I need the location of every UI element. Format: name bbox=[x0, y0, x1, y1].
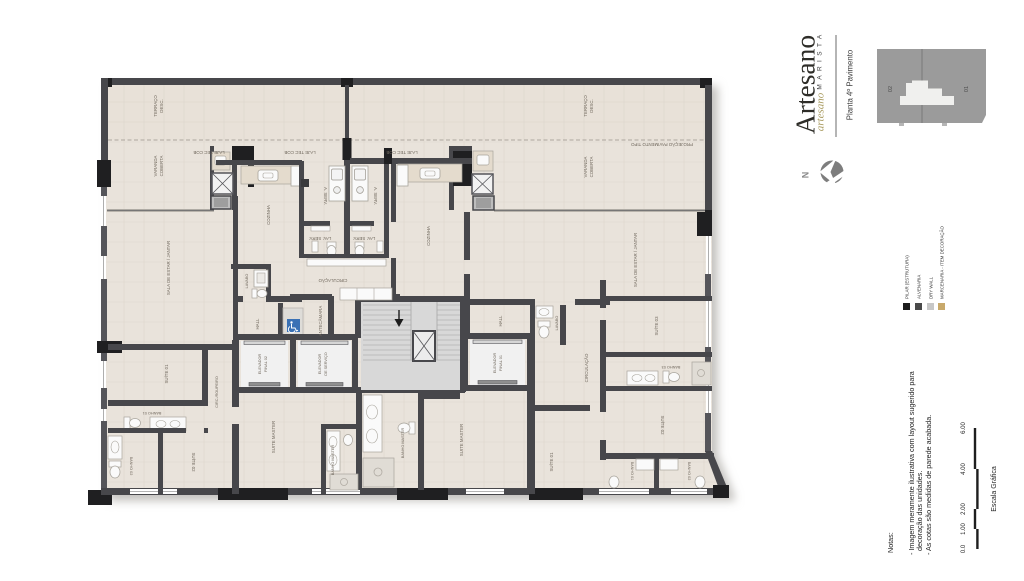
svg-text:DESC.: DESC. bbox=[589, 99, 594, 112]
svg-text:FINAL 01: FINAL 01 bbox=[499, 355, 503, 371]
svg-text:SUITE MASTER: SUITE MASTER bbox=[459, 424, 464, 456]
svg-text:LAVABO: LAVABO bbox=[245, 274, 249, 289]
svg-text:PILAR (ESTRUTURA): PILAR (ESTRUTURA) bbox=[905, 255, 910, 299]
svg-text:SUÍTE 01: SUÍTE 01 bbox=[549, 452, 554, 472]
svg-text:VARANDA: VARANDA bbox=[153, 155, 158, 176]
svg-text:LAV. SERV.: LAV. SERV. bbox=[309, 236, 332, 241]
svg-text:ALVENARIA: ALVENARIA bbox=[917, 275, 922, 299]
svg-text:Planta 4º Pavimento: Planta 4º Pavimento bbox=[846, 49, 855, 120]
svg-text:COZINHA: COZINHA bbox=[426, 226, 431, 246]
svg-text:6.00: 6.00 bbox=[961, 422, 967, 434]
svg-text:BANHO MASTER: BANHO MASTER bbox=[331, 445, 335, 476]
svg-text:1.00: 1.00 bbox=[961, 523, 967, 535]
svg-text:SALA DE ESTAR / JANTAR: SALA DE ESTAR / JANTAR bbox=[633, 233, 638, 287]
svg-text:LAJE TEC COB: LAJE TEC COB bbox=[284, 150, 315, 155]
svg-text:TERRAÇO: TERRAÇO bbox=[583, 95, 588, 117]
svg-text:Notas:: Notas: bbox=[886, 532, 895, 553]
svg-text:SUÍTE 03: SUÍTE 03 bbox=[654, 316, 659, 336]
svg-text:DE SERVIÇO: DE SERVIÇO bbox=[324, 352, 328, 375]
svg-text:ELEVADOR: ELEVADOR bbox=[493, 353, 497, 374]
svg-text:ANTECÂMARA: ANTECÂMARA bbox=[318, 306, 323, 337]
svg-text:VARANDA: VARANDA bbox=[583, 156, 588, 177]
svg-text:CIRCULAÇÃO: CIRCULAÇÃO bbox=[318, 278, 347, 283]
svg-text:artesano: artesano bbox=[815, 92, 827, 131]
svg-text:2.00: 2.00 bbox=[961, 503, 967, 515]
svg-text:SUÍTE 02: SUÍTE 02 bbox=[660, 415, 665, 435]
svg-text:FINAL 02: FINAL 02 bbox=[264, 356, 268, 372]
svg-text:BANHO 02: BANHO 02 bbox=[687, 462, 691, 481]
svg-text:BANHO 03: BANHO 03 bbox=[662, 365, 681, 369]
svg-text:HALL: HALL bbox=[255, 318, 260, 330]
svg-text:MARCENARIA - ITEM DECORAÇÃO: MARCENARIA - ITEM DECORAÇÃO bbox=[940, 225, 945, 299]
svg-text:HALL: HALL bbox=[498, 315, 503, 327]
svg-text:02: 02 bbox=[888, 86, 894, 92]
svg-text:LAJE TEC COB: LAJE TEC COB bbox=[193, 150, 224, 155]
svg-text:BANHO MASTER: BANHO MASTER bbox=[401, 428, 405, 459]
svg-text:ELEVADOR: ELEVADOR bbox=[318, 354, 322, 375]
svg-text:- As cotas são medidas de pare: - As cotas são medidas de parede acabada… bbox=[924, 415, 933, 555]
svg-text:0.0: 0.0 bbox=[961, 544, 967, 553]
svg-text:COBERTA: COBERTA bbox=[159, 156, 164, 177]
svg-text:decoração das unidades.: decoração das unidades. bbox=[915, 471, 924, 551]
svg-text:COZINHA: COZINHA bbox=[266, 205, 271, 225]
svg-text:MARISTA: MARISTA bbox=[817, 30, 824, 89]
svg-text:BANHO 01: BANHO 01 bbox=[630, 462, 634, 481]
svg-text:PROJEÇÃO PAVIMENTO TIPO: PROJEÇÃO PAVIMENTO TIPO bbox=[630, 142, 692, 147]
svg-text:DRY WALL: DRY WALL bbox=[929, 276, 934, 299]
svg-text:LAVABO: LAVABO bbox=[555, 316, 559, 331]
svg-text:ELEVADOR: ELEVADOR bbox=[258, 354, 262, 375]
svg-text:CIRC./ROUPEIRO: CIRC./ROUPEIRO bbox=[215, 376, 219, 408]
svg-text:BANHO 01: BANHO 01 bbox=[143, 411, 162, 415]
svg-text:A. SERV.: A. SERV. bbox=[373, 187, 378, 205]
svg-text:SUÍTE 01: SUÍTE 01 bbox=[164, 364, 169, 384]
svg-text:COBERTA: COBERTA bbox=[589, 157, 594, 178]
svg-text:01: 01 bbox=[964, 86, 970, 92]
svg-text:SUÍTE 02: SUÍTE 02 bbox=[191, 452, 196, 472]
svg-text:LAJE TEC COB: LAJE TEC COB bbox=[386, 150, 417, 155]
svg-text:TERRAÇO: TERRAÇO bbox=[153, 95, 158, 117]
svg-text:SALA DE ESTAR / JANTAR: SALA DE ESTAR / JANTAR bbox=[166, 241, 171, 295]
svg-text:Escala Gráfica: Escala Gráfica bbox=[991, 466, 998, 512]
svg-text:CIRCULAÇÃO: CIRCULAÇÃO bbox=[584, 353, 589, 382]
svg-text:N: N bbox=[801, 172, 811, 179]
svg-text:BANHO 02: BANHO 02 bbox=[129, 457, 133, 476]
svg-text:DESC.: DESC. bbox=[159, 99, 164, 112]
svg-text:4.00: 4.00 bbox=[961, 463, 967, 475]
svg-text:SUITE MASTER: SUITE MASTER bbox=[271, 421, 276, 453]
svg-text:A. SERV.: A. SERV. bbox=[323, 187, 328, 205]
svg-text:LAV. SERV.: LAV. SERV. bbox=[353, 236, 376, 241]
